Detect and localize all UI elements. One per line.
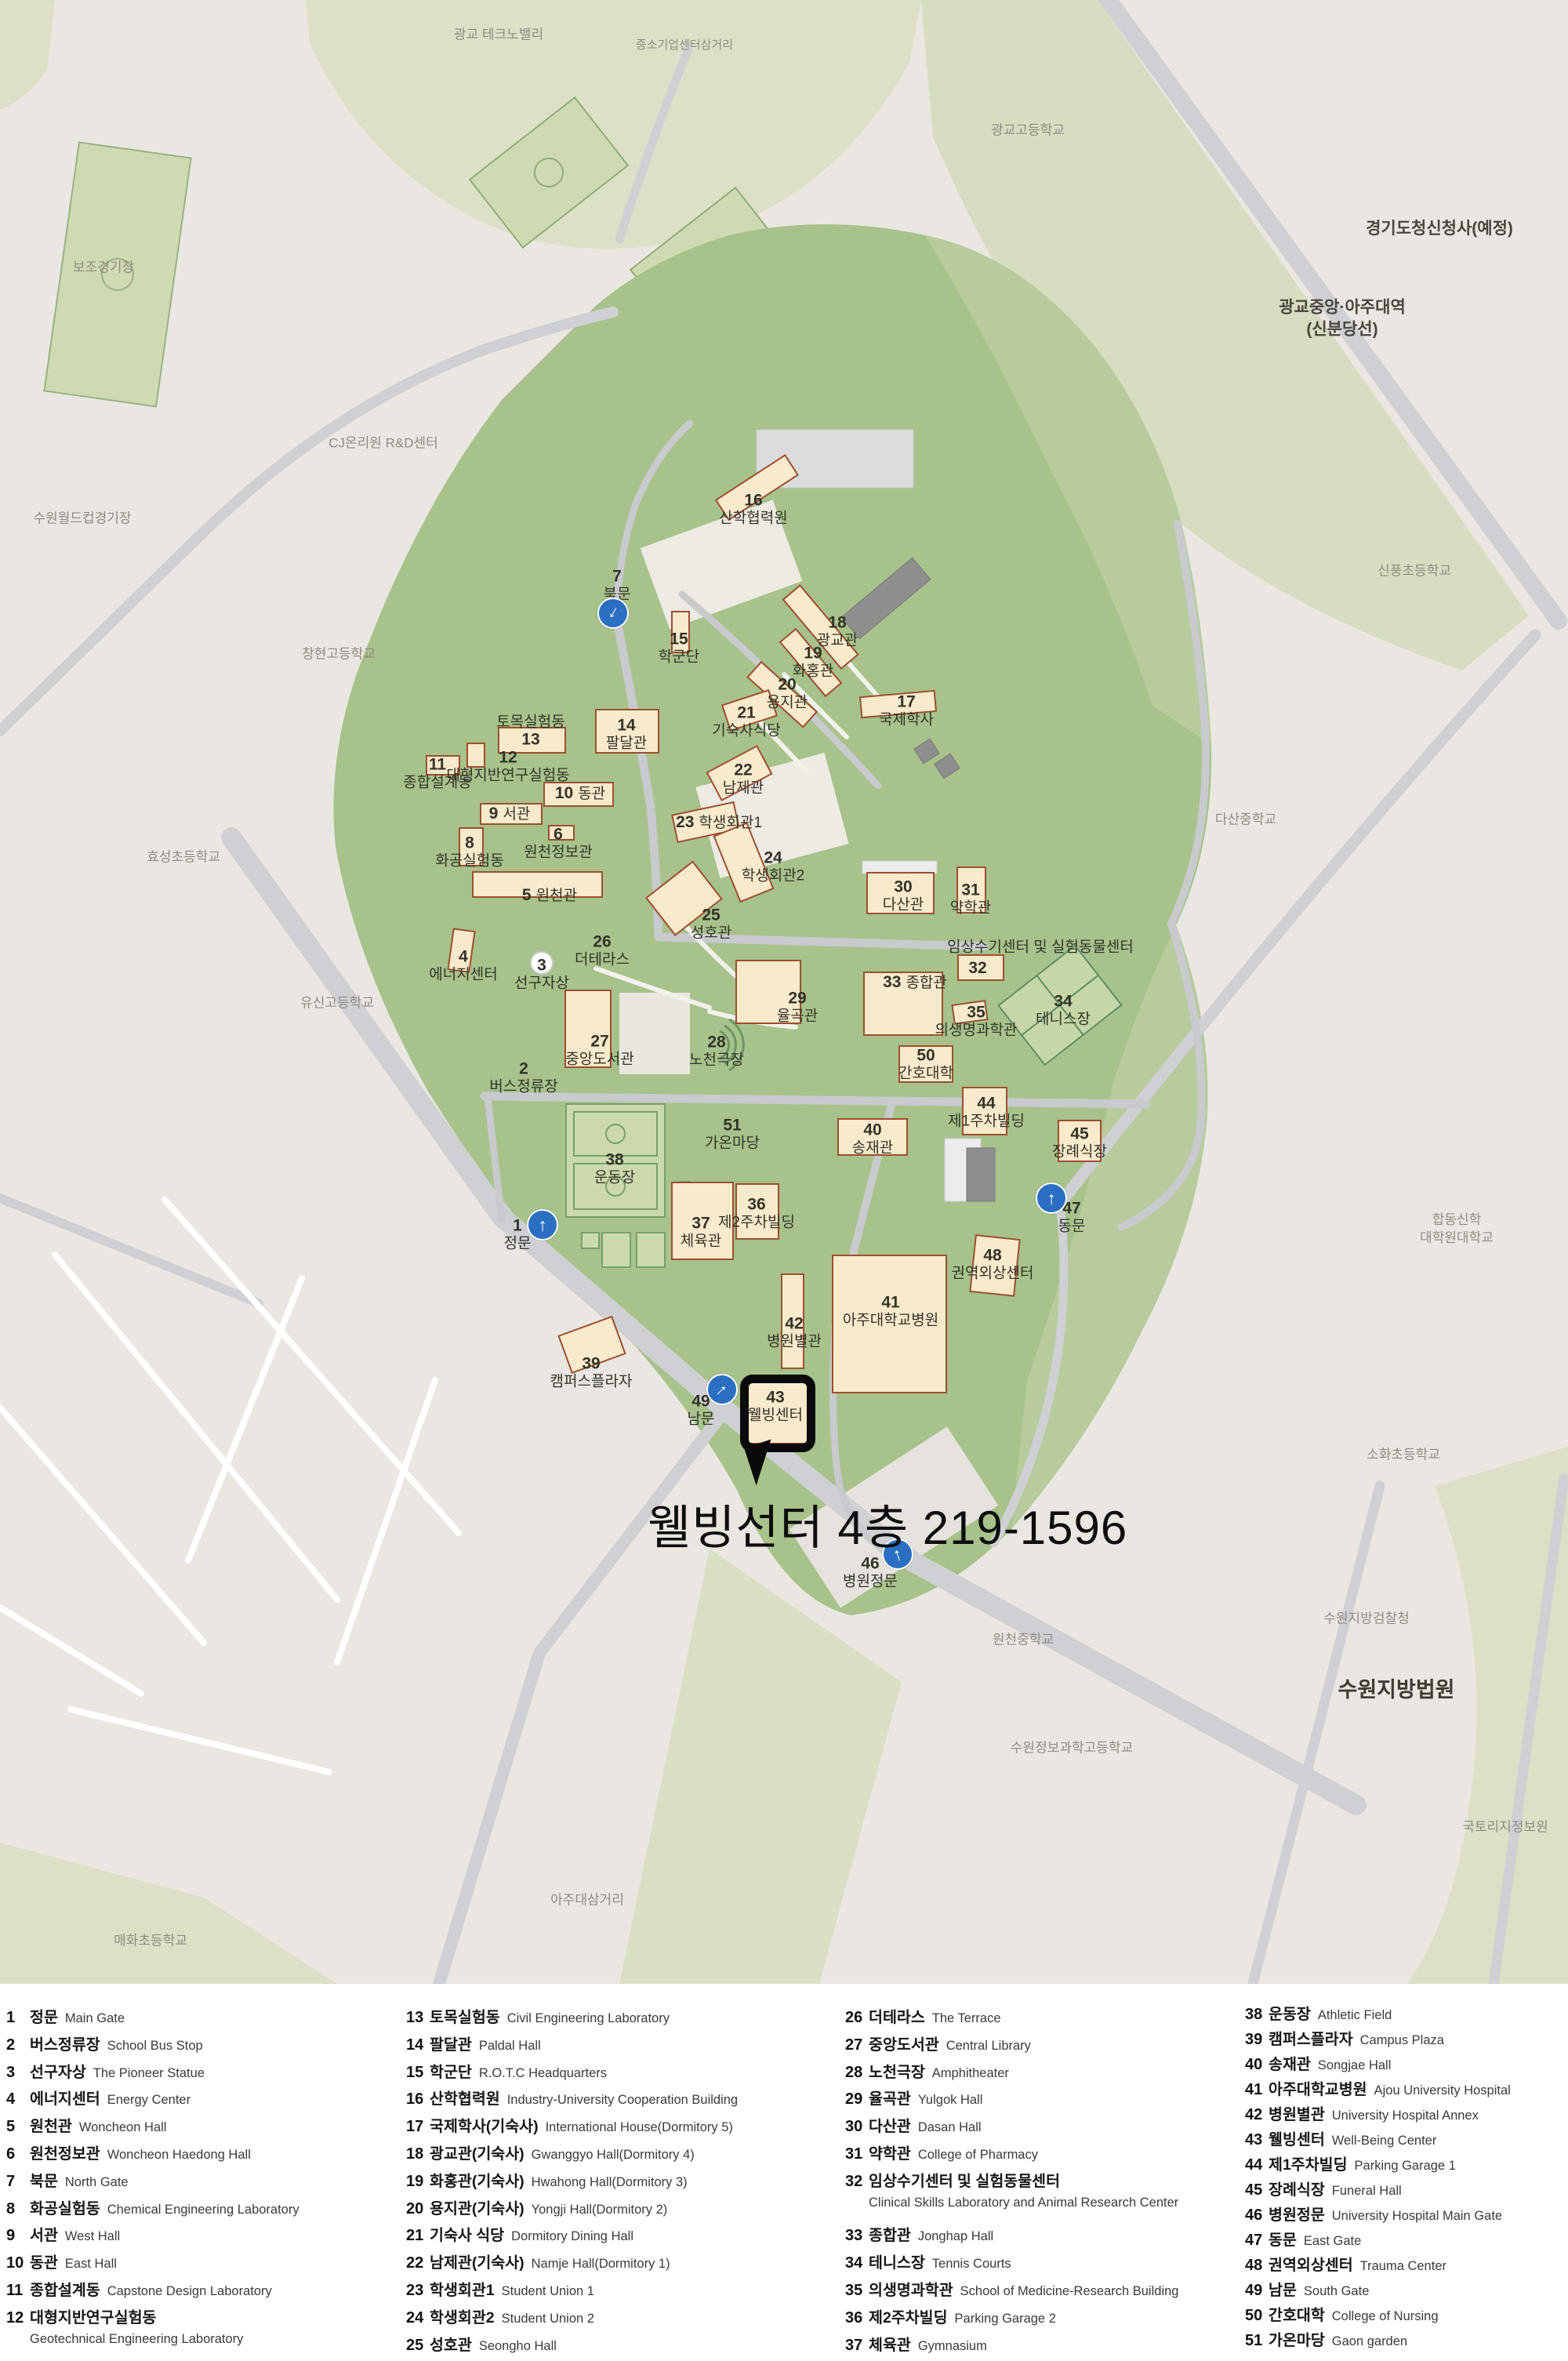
building-label: 19화홍관 xyxy=(793,645,833,680)
gate-arrow-icon: ↑ xyxy=(1036,1182,1067,1214)
area-label: 수원월드컵경기장 xyxy=(33,510,131,529)
building-label: 37체육관 xyxy=(681,1215,721,1250)
legend-entry: 3선구자상The Pioneer Statue xyxy=(6,2059,205,2082)
building-label: 44제1주차빌딩 xyxy=(948,1095,1025,1130)
area-label: 광교고등학교 xyxy=(991,122,1065,140)
legend-entry: 45장례식장Funeral Hall xyxy=(1245,2177,1402,2199)
legend-entry: 11종합설계동Capstone Design Laboratory xyxy=(6,2277,272,2300)
area-label: 광교중앙·아주대역(신분당선) xyxy=(1279,297,1406,342)
building-label: 35의생명과학관 xyxy=(935,1004,1018,1039)
legend-entry: 21기숙사 식당Dormitory Dining Hall xyxy=(406,2222,633,2245)
area-label: 원천중학교 xyxy=(993,1632,1054,1650)
gate-arrow-icon: ↑ xyxy=(527,1209,558,1240)
area-label: 효성초등학교 xyxy=(147,849,220,867)
legend-entry: 48권역외상센터Trauma Center xyxy=(1245,2252,1446,2275)
area-label: 소화초등학교 xyxy=(1367,1447,1440,1465)
legend-entry: 33종합관Jonghap Hall xyxy=(845,2222,993,2245)
area-label: 국토리지정보원 xyxy=(1462,1819,1548,1837)
building-label: 21기숙사식당 xyxy=(712,704,780,739)
legend-entry: 2버스정류장School Bus Stop xyxy=(6,2032,203,2054)
legend-entry: 39캠퍼스플라자Campus Plaza xyxy=(1245,2026,1444,2049)
building-label: 51가온마당 xyxy=(705,1117,760,1152)
legend-entry: 5원천관Woncheon Hall xyxy=(6,2113,166,2136)
legend-entry: 41아주대학교병원Ajou University Hospital xyxy=(1245,2076,1511,2099)
building-label: 9서관 xyxy=(487,805,533,823)
building-label: 5원천관 xyxy=(520,886,579,905)
legend-entry: 40송재관Songjae Hall xyxy=(1245,2051,1391,2074)
legend-entry: 23학생회관1Student Union 1 xyxy=(406,2277,594,2300)
building-label: 17국제학사 xyxy=(879,693,934,728)
area-label: 합동신학대학원대학교 xyxy=(1420,1211,1494,1248)
legend-entry: 44제1주차빌딩Parking Garage 1 xyxy=(1245,2152,1456,2174)
gate-arrow-icon: ↑ xyxy=(597,598,629,629)
legend-entry: 26더테라스The Terrace xyxy=(845,2004,1001,2027)
legend-entry: 14팔달관Paldal Hall xyxy=(406,2032,541,2054)
legend-entry: 18광교관(기숙사)Gwanggyo Hall(Dormitory 4) xyxy=(406,2141,695,2163)
legend-entry: 20용지관(기숙사)Yongji Hall(Dormitory 2) xyxy=(406,2196,667,2218)
area-label: 유신고등학교 xyxy=(300,995,374,1013)
area-label: 아주대삼거리 xyxy=(550,1892,624,1910)
building-label: 42병원별관 xyxy=(767,1315,822,1350)
annotation-text: 웰빙선터 4층 219-1596 xyxy=(648,1490,1127,1558)
building-label: 3선구자상 xyxy=(514,957,569,992)
legend-entry: 19화홍관(기숙사)Hwahong Hall(Dormitory 3) xyxy=(406,2168,688,2191)
building-label: 45장례식장 xyxy=(1052,1125,1107,1161)
area-label: 수원지방법원 xyxy=(1338,1676,1454,1704)
legend-entry: 4에너지센터Energy Center xyxy=(6,2086,191,2109)
legend-entry-continuation: Clinical Skills Laboratory and Animal Re… xyxy=(845,2196,1178,2210)
area-label: 매화초등학교 xyxy=(114,1933,187,1951)
building-label: 34테니스장 xyxy=(1036,993,1091,1028)
area-label: 광교 테크노밸리 xyxy=(454,27,543,45)
legend-entry: 13토목실험동Civil Engineering Laboratory xyxy=(406,2004,670,2027)
building-label: 38운동장 xyxy=(594,1151,635,1186)
legend-entry: 1정문Main Gate xyxy=(6,2004,125,2027)
legend-entry: 34테니스장Tennis Courts xyxy=(845,2250,1011,2272)
area-label: 신풍초등학교 xyxy=(1377,563,1451,581)
area-label: 경기도청신청사(예정) xyxy=(1366,218,1513,240)
building-label: 27중앙도서관 xyxy=(565,1033,633,1068)
legend-entry: 12대형지반연구실험동 xyxy=(6,2305,163,2327)
campus-map: 웰빙선터 4층 219-1596 1정문2버스정류장3선구자상4에너지센터5원천… xyxy=(0,0,1568,1984)
area-label: 창현고등학교 xyxy=(302,646,376,664)
legend-entry: 28노천극장Amphitheater xyxy=(845,2059,1009,2082)
building-label: 16산학협력원 xyxy=(719,492,787,527)
building-label: 10동관 xyxy=(553,784,608,803)
legend-entry: 42병원별관University Hospital Annex xyxy=(1245,2101,1479,2124)
building-label: 14팔달관 xyxy=(606,717,647,752)
legend-entry: 49남문South Gate xyxy=(1245,2277,1369,2300)
building-label: 36제2주차빌딩 xyxy=(718,1196,795,1231)
building-label: 임상수기센터 및 실험동물센터 xyxy=(945,939,1136,955)
annotation-highlight-box xyxy=(740,1375,815,1452)
legend-entry: 50간호대학College of Nursing xyxy=(1245,2302,1439,2325)
legend-entry: 27중앙도서관Central Library xyxy=(845,2032,1031,2054)
building-label: 26더테라스 xyxy=(575,933,630,968)
building-label: 40송재관 xyxy=(852,1121,893,1157)
building-label: 12대형지반연구실험동 xyxy=(446,749,569,784)
legend-entry: 30다산관Dasan Hall xyxy=(845,2113,982,2136)
gate-arrow-icon: ↑ xyxy=(706,1374,738,1405)
building-label: 25성호관 xyxy=(691,906,731,942)
legend-entry: 46병원정문University Hospital Main Gate xyxy=(1245,2202,1502,2225)
legend-entry: 47동문East Gate xyxy=(1245,2227,1361,2250)
legend-entry: 22남제관(기숙사)Namje Hall(Dormitory 1) xyxy=(406,2250,670,2272)
legend-entry: 16산학협력원Industry-University Cooperation B… xyxy=(406,2086,738,2109)
area-label: 수원정보과학고등학교 xyxy=(1011,1740,1133,1758)
legend-entry: 9서관West Hall xyxy=(6,2222,120,2245)
area-label: 다산중학교 xyxy=(1215,812,1276,830)
building-label: 24학생회관2 xyxy=(742,849,805,884)
building-label: 29율곡관 xyxy=(777,990,818,1025)
legend-entry: 36제2주차빌딩Parking Garage 2 xyxy=(845,2305,1056,2327)
legend-entry: 6원천정보관Woncheon Haedong Hall xyxy=(6,2141,251,2163)
legend-entry: 24학생회관2Student Union 2 xyxy=(406,2305,594,2327)
legend-entry: 38운동장Athletic Field xyxy=(1245,2001,1392,2024)
building-label: 13토목실험동 xyxy=(496,714,564,750)
building-label: 32 xyxy=(968,959,986,978)
legend: 1정문Main Gate2버스정류장School Bus Stop3선구자상Th… xyxy=(0,1984,1568,2361)
legend-entry: 25성호관Seongho Hall xyxy=(406,2332,557,2355)
legend-entry: 43웰빙센터Well-Being Center xyxy=(1245,2127,1436,2149)
area-label: 보조경기장 xyxy=(73,260,134,278)
legend-entry: 51가온마당Gaon garden xyxy=(1245,2327,1407,2350)
building-label: 41아주대학교병원 xyxy=(843,1294,938,1329)
legend-entry: 10동관East Hall xyxy=(6,2250,117,2272)
building-label: 15학군단 xyxy=(659,630,699,666)
legend-entry: 31약학관College of Pharmacy xyxy=(845,2141,1038,2163)
area-label: 수원지방검찰청 xyxy=(1323,1611,1409,1629)
building-label: 31약학관 xyxy=(950,881,991,917)
building-label: 2버스정류장 xyxy=(489,1060,557,1095)
legend-entry: 32임상수기센터 및 실험동물센터 xyxy=(845,2168,1067,2191)
legend-entry-continuation: Geotechnical Engineering Laboratory xyxy=(6,2332,243,2347)
building-label: 33종합관 xyxy=(880,973,949,992)
legend-entry: 7북문North Gate xyxy=(6,2168,129,2191)
building-label: 30다산관 xyxy=(883,878,924,914)
building-label: 8화공실험동 xyxy=(435,834,503,870)
building-label: 28노천극장 xyxy=(689,1033,744,1069)
building-label: 4에너지센터 xyxy=(429,948,497,983)
building-label: 22남제관 xyxy=(723,761,764,797)
legend-entry: 8화공실험동Chemical Engineering Laboratory xyxy=(6,2196,299,2218)
building-label: 39캠퍼스플라자 xyxy=(550,1355,633,1390)
building-label: 23학생회관1 xyxy=(673,813,764,832)
building-label: 6원천정보관 xyxy=(524,826,592,861)
legend-entry: 37체육관Gymnasium xyxy=(845,2332,987,2355)
legend-entry: 35의생명과학관School of Medicine-Research Buil… xyxy=(845,2277,1178,2300)
legend-entry: 17국제학사(기숙사)International House(Dormitory… xyxy=(406,2113,733,2136)
building-label: 48권역외상센터 xyxy=(952,1247,1034,1282)
area-label: CJ온리원 R&D센터 xyxy=(328,435,438,453)
legend-entry: 29율곡관Yulgok Hall xyxy=(845,2086,982,2109)
legend-entry: 15학군단R.O.T.C Headquarters xyxy=(406,2059,607,2082)
area-label: 중소기업센터삼거리 xyxy=(636,38,733,53)
building-label: 50간호대학 xyxy=(898,1047,953,1082)
